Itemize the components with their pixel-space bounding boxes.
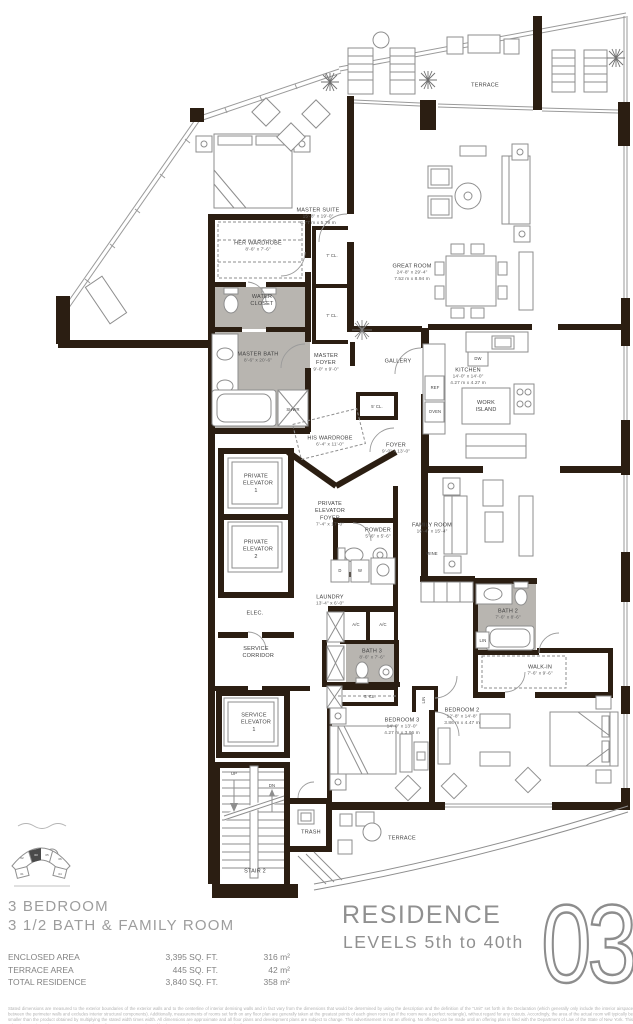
label-7cl-b: 7' CL. xyxy=(326,314,338,319)
diagonal-walls xyxy=(288,452,396,486)
key-plan: 02 03 05 06 01 04 xyxy=(12,824,70,887)
label-gallery: GALLERY xyxy=(385,357,412,364)
label-elec: ELEC. xyxy=(247,609,264,616)
label-terrace-bottom: TERRACE xyxy=(388,834,416,841)
label-work-island: WORK ISLAND xyxy=(475,399,497,413)
label-5cl-b: 5' CL. xyxy=(364,695,376,700)
disclaimer-text: Stated dimensions are measured to the ex… xyxy=(8,1006,633,1024)
label-bedroom-3: BEDROOM 314'-0" x 13'-0"4.27 m x 3.96 m xyxy=(384,716,420,735)
label-laundry: LAUNDRY13'-4" x 6'-0" xyxy=(316,593,344,606)
floor-plan-page: 02 03 05 06 01 04 TERRACE MASTER SUITE15… xyxy=(0,0,633,1024)
label-dryer: D xyxy=(338,569,341,574)
label-washer: W xyxy=(358,569,362,574)
label-stair-2: STAIR 2 xyxy=(244,867,266,874)
label-master-suite: MASTER SUITE15'-8" x 19'-0"4.77 m x 5.79… xyxy=(296,206,339,225)
residence-levels: LEVELS 5th to 40th xyxy=(343,932,524,953)
svg-text:06: 06 xyxy=(58,857,62,861)
residence-word: RESIDENCE xyxy=(342,901,501,930)
area-row-enclosed: ENCLOSED AREA 3,395 SQ. FT. 316 m² xyxy=(8,951,292,964)
label-terrace-top: TERRACE xyxy=(471,81,499,88)
svg-text:03: 03 xyxy=(34,853,38,857)
label-private-elevator-1: PRIVATE ELEVATOR 1 xyxy=(243,472,269,493)
label-master-bath: MASTER BATH8'-6" x 20'-6" xyxy=(238,350,279,363)
label-service-elevator: SERVICE ELEVATOR 1 xyxy=(241,711,267,732)
label-ac-2: A/C xyxy=(379,623,386,628)
label-her-wardrobe: HER WARDROBE8'-6" x 7'-6" xyxy=(234,239,282,252)
label-ac-1: A/C xyxy=(352,623,359,628)
svg-text:02: 02 xyxy=(20,856,24,860)
label-master-foyer: MASTER FOYER9'-0" x 9'-0" xyxy=(314,352,339,372)
label-foyer: FOYER9'-0" x 13'-0" xyxy=(382,441,410,454)
label-walk-in: WALK-IN7'-6" x 9'-6" xyxy=(527,663,552,676)
label-his-wardrobe: HIS WARDROBE6'-4" x 11'-0" xyxy=(307,434,352,447)
label-5cl-a: 5' CL. xyxy=(371,405,383,410)
area-table: ENCLOSED AREA 3,395 SQ. FT. 316 m² TERRA… xyxy=(8,951,292,989)
label-lin-1: LIN xyxy=(480,639,487,644)
svg-text:05: 05 xyxy=(45,853,49,857)
label-bedroom-2: BEDROOM 212'-8" x 14'-8"3.86 m x 4.47 m xyxy=(444,706,480,725)
area-row-terrace: TERRACE AREA 445 SQ. FT. 42 m² xyxy=(8,964,292,977)
plan-title-line1: 3 BEDROOM xyxy=(8,898,109,915)
label-dw: DW xyxy=(474,357,481,362)
label-dn: DN xyxy=(269,784,275,789)
label-up: UP xyxy=(231,772,237,777)
label-lin-2: LIN xyxy=(422,697,427,704)
label-great-room: GREAT ROOM24'-8" x 29'-4"7.52 m x 8.94 m xyxy=(392,262,431,281)
label-private-elevator-2: PRIVATE ELEVATOR 2 xyxy=(243,538,269,559)
label-trash: TRASH xyxy=(301,828,321,835)
label-oven: OVEN xyxy=(429,410,441,415)
label-water-closet: WATER CLOSET xyxy=(250,293,275,307)
label-ref: REF xyxy=(431,386,440,391)
label-powder: POWDER5'-6" x 5'-6" xyxy=(365,526,391,539)
label-7cl-a: 7' CL. xyxy=(326,254,338,259)
label-service-corridor: SERVICE CORRIDOR xyxy=(243,645,270,659)
label-family-room: FAMILY ROOM16'-4" x 15'-4" xyxy=(412,521,452,534)
svg-text:04: 04 xyxy=(58,872,62,876)
svg-text:01: 01 xyxy=(20,872,24,876)
label-wine: WINE xyxy=(426,552,437,557)
label-kitchen: KITCHEN14'-0" x 14'-0"4.27 m x 4.27 m xyxy=(450,366,486,385)
label-shwr: SHWR xyxy=(286,408,299,413)
residence-number: 03 xyxy=(541,890,633,1000)
label-pe-foyer: PRIVATE ELEVATOR FOYER7'-4" x 17'-0" xyxy=(305,500,355,528)
plan-title-line2: 3 1/2 BATH & FAMILY ROOM xyxy=(8,917,234,934)
area-row-total: TOTAL RESIDENCE 3,840 SQ. FT. 358 m² xyxy=(8,976,292,989)
label-bath-2: BATH 27'-6" x 8'-6" xyxy=(495,607,520,620)
label-bath-3: BATH 38'-6" x 7'-6" xyxy=(359,647,384,660)
